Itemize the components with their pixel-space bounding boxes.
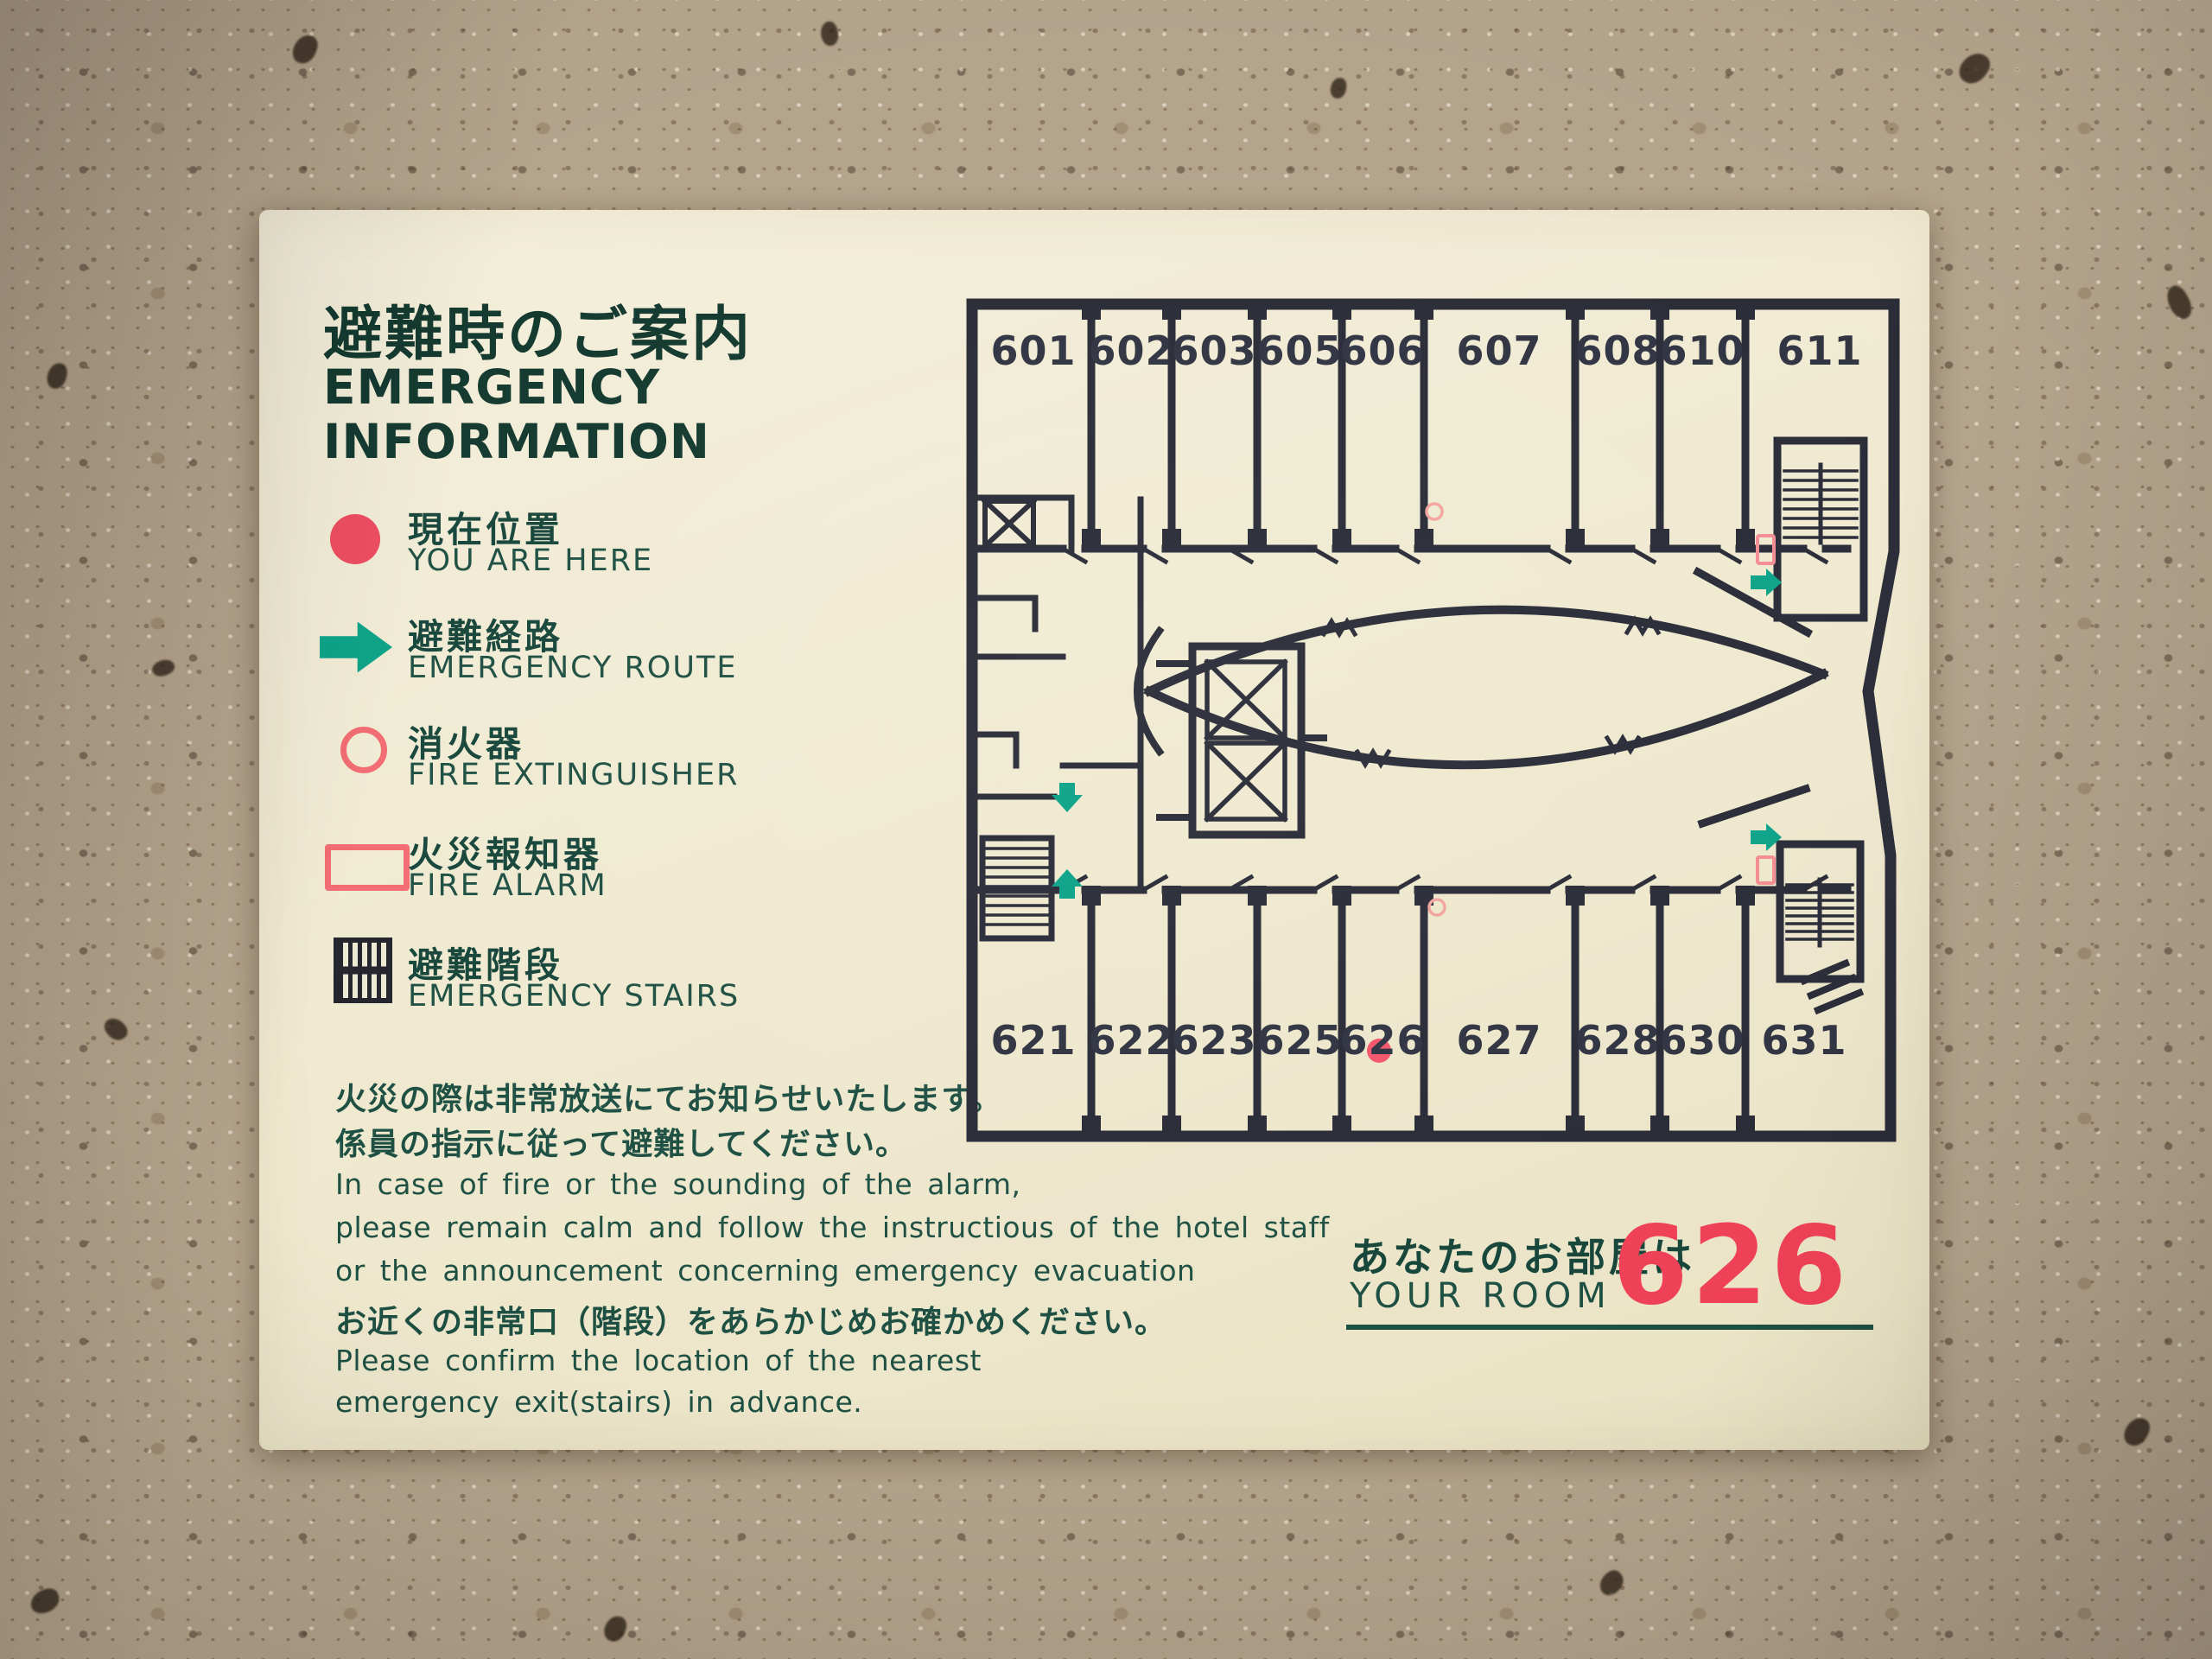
wall-speckle — [46, 361, 69, 390]
your-room-underline — [1346, 1325, 1873, 1330]
legend-emergency-route-en: EMERGENCY ROUTE — [408, 651, 737, 685]
room-number: 623 — [1171, 1017, 1256, 1064]
you-are-here-icon — [330, 514, 380, 564]
wall-speckle — [818, 20, 842, 48]
notice-en-line1: In case of fire or the sounding of the a… — [335, 1167, 1020, 1201]
room-number: 610 — [1659, 327, 1745, 374]
wall-speckle — [28, 1586, 63, 1617]
room-number: 631 — [1761, 1017, 1847, 1064]
route-arrow-down-icon — [1052, 783, 1083, 812]
sign-title-english: EMERGENCY INFORMATION — [323, 360, 710, 469]
safety-symbols — [1367, 504, 1774, 1063]
plan-wall-jambs — [1082, 299, 1755, 1136]
service-elevator — [985, 501, 1033, 546]
room-number: 611 — [1777, 327, 1862, 374]
room-number: 603 — [1171, 327, 1256, 374]
room-number: 605 — [1256, 327, 1342, 374]
floor-plan-svg: 601 602 603 605 606 607 608 610 611 621 … — [933, 285, 1914, 1149]
fire-extinguisher-marker-top — [1427, 504, 1442, 519]
legend-fire-alarm-en: FIRE ALARM — [408, 868, 607, 903]
emergency-information-sign: 避難時のご案内 EMERGENCY INFORMATION 現在位置 YOU A… — [259, 210, 1929, 1450]
wall-speckle — [2120, 1414, 2153, 1450]
wall-speckle — [2162, 283, 2197, 323]
notice-en-line2: please remain calm and follow the instru… — [335, 1211, 1330, 1244]
legend-fire-extinguisher-en: FIRE EXTINGUISHER — [408, 758, 739, 792]
room-number: 602 — [1088, 327, 1173, 374]
wall-speckle — [1955, 48, 1994, 89]
emergency-stairs-icon — [334, 938, 392, 1003]
notice-jp-line2: 係員の指示に従って避難してください。 — [335, 1119, 907, 1164]
room-number: 601 — [990, 327, 1076, 374]
sign-title-english-line1: EMERGENCY — [323, 360, 710, 415]
wall-speckle — [1595, 1567, 1628, 1599]
room-number: 630 — [1659, 1017, 1745, 1064]
room-number: 606 — [1339, 327, 1425, 374]
room-number: 628 — [1574, 1017, 1660, 1064]
fire-extinguisher-marker-bottom — [1429, 899, 1445, 915]
sign-title-english-line2: INFORMATION — [323, 415, 710, 469]
legend-emergency-stairs-en: EMERGENCY STAIRS — [408, 979, 740, 1014]
stairs-icon-band — [334, 967, 392, 975]
room-number: 627 — [1456, 1017, 1541, 1064]
fire-alarm-marker-bottom — [1758, 857, 1774, 883]
room-number: 626 — [1339, 1017, 1425, 1064]
your-room-number: 626 — [1612, 1202, 1850, 1329]
notice-en-line4: Please confirm the location of the neare… — [335, 1344, 982, 1377]
right-end-corridor-walls — [1698, 572, 1808, 823]
your-room-en: YOUR ROOM — [1350, 1276, 1611, 1316]
notice-en-line3: or the announcement concerning emergency… — [335, 1254, 1195, 1287]
fire-extinguisher-icon — [340, 727, 387, 773]
wall-speckle — [149, 656, 176, 679]
left-service-walls — [972, 498, 1141, 890]
plan-zigzag-joints — [1324, 620, 1658, 765]
room-number: 607 — [1456, 327, 1541, 374]
room-number: 622 — [1088, 1017, 1173, 1064]
room-number: 608 — [1574, 327, 1660, 374]
right-end-hash-marks — [1804, 963, 1859, 1010]
fire-alarm-icon — [325, 844, 410, 891]
wall-speckle — [101, 1014, 131, 1045]
wall-speckle — [602, 1613, 629, 1643]
emergency-route-icon — [320, 620, 392, 675]
wall-speckle — [289, 32, 321, 67]
notice-jp-line3: お近くの非常口（階段）をあらかじめお確かめください。 — [335, 1297, 1166, 1342]
room-number: 625 — [1256, 1017, 1342, 1064]
route-arrow-up-icon — [1052, 869, 1083, 899]
notice-en-line5: emergency exit(stairs) in advance. — [335, 1385, 862, 1419]
room-number: 621 — [990, 1017, 1076, 1064]
legend-you-are-here-en: YOU ARE HERE — [408, 543, 653, 578]
photo-of-emergency-sign: { "sign": { "title_jp": "避難時のご案内", "titl… — [0, 0, 2212, 1659]
plan-outer-walls — [972, 304, 1894, 1136]
notice-jp-line1: 火災の際は非常放送にてお知らせいたします。 — [335, 1074, 1002, 1119]
wall-speckle — [1330, 77, 1347, 99]
floor-plan: 601 602 603 605 606 607 608 610 611 621 … — [933, 285, 1914, 1149]
